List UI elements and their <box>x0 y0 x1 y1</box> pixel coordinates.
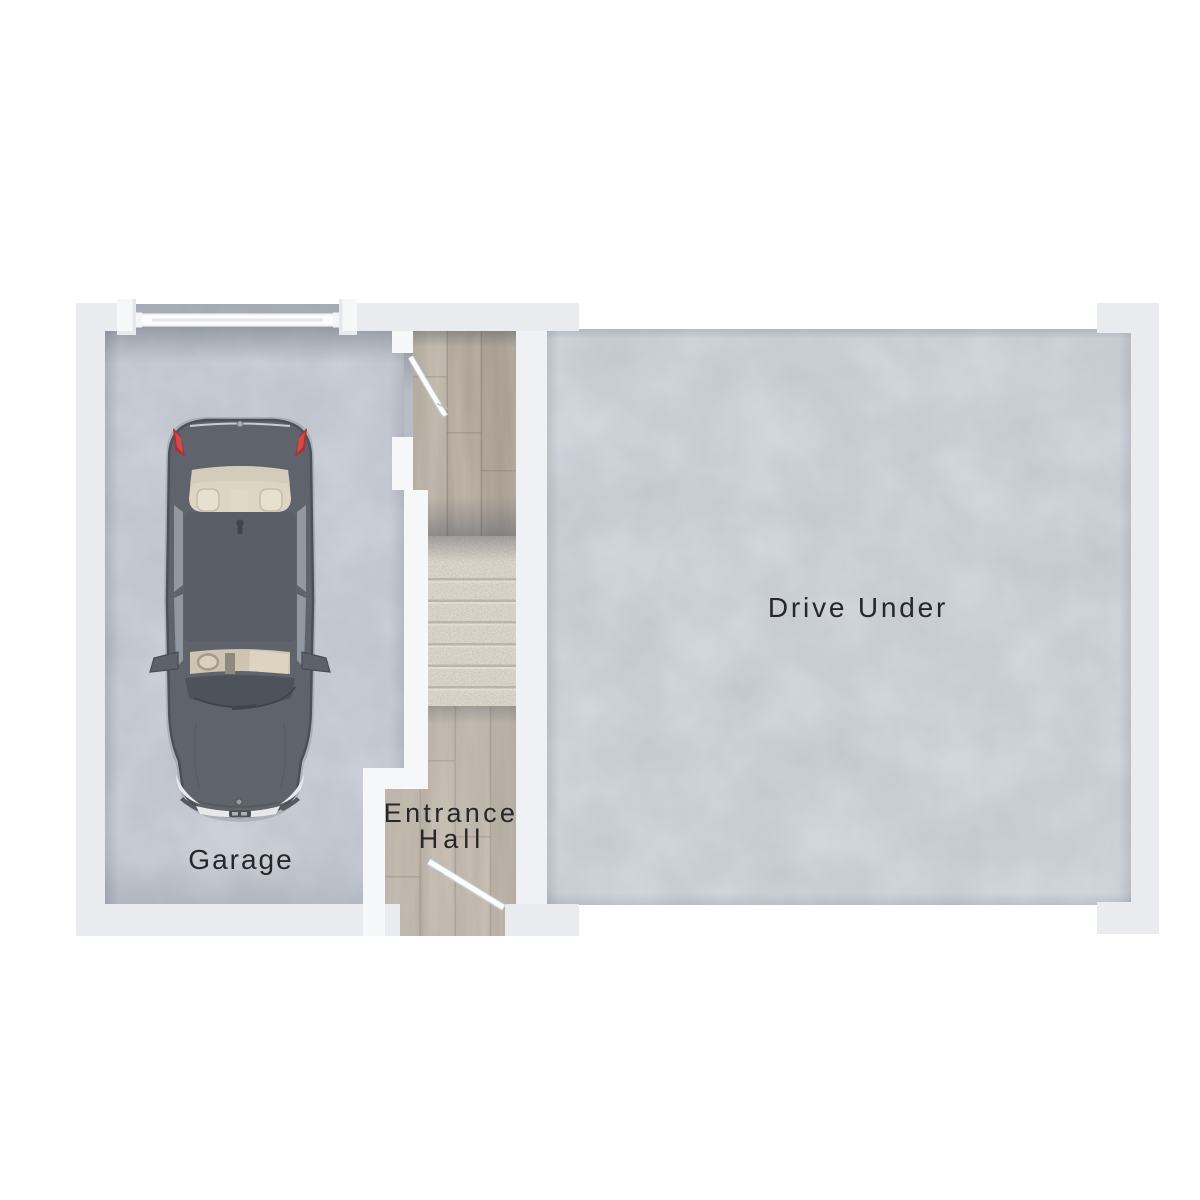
svg-text:Hall: Hall <box>419 824 486 854</box>
svg-text:Garage: Garage <box>188 844 293 875</box>
svg-text:Drive Under: Drive Under <box>768 592 948 623</box>
